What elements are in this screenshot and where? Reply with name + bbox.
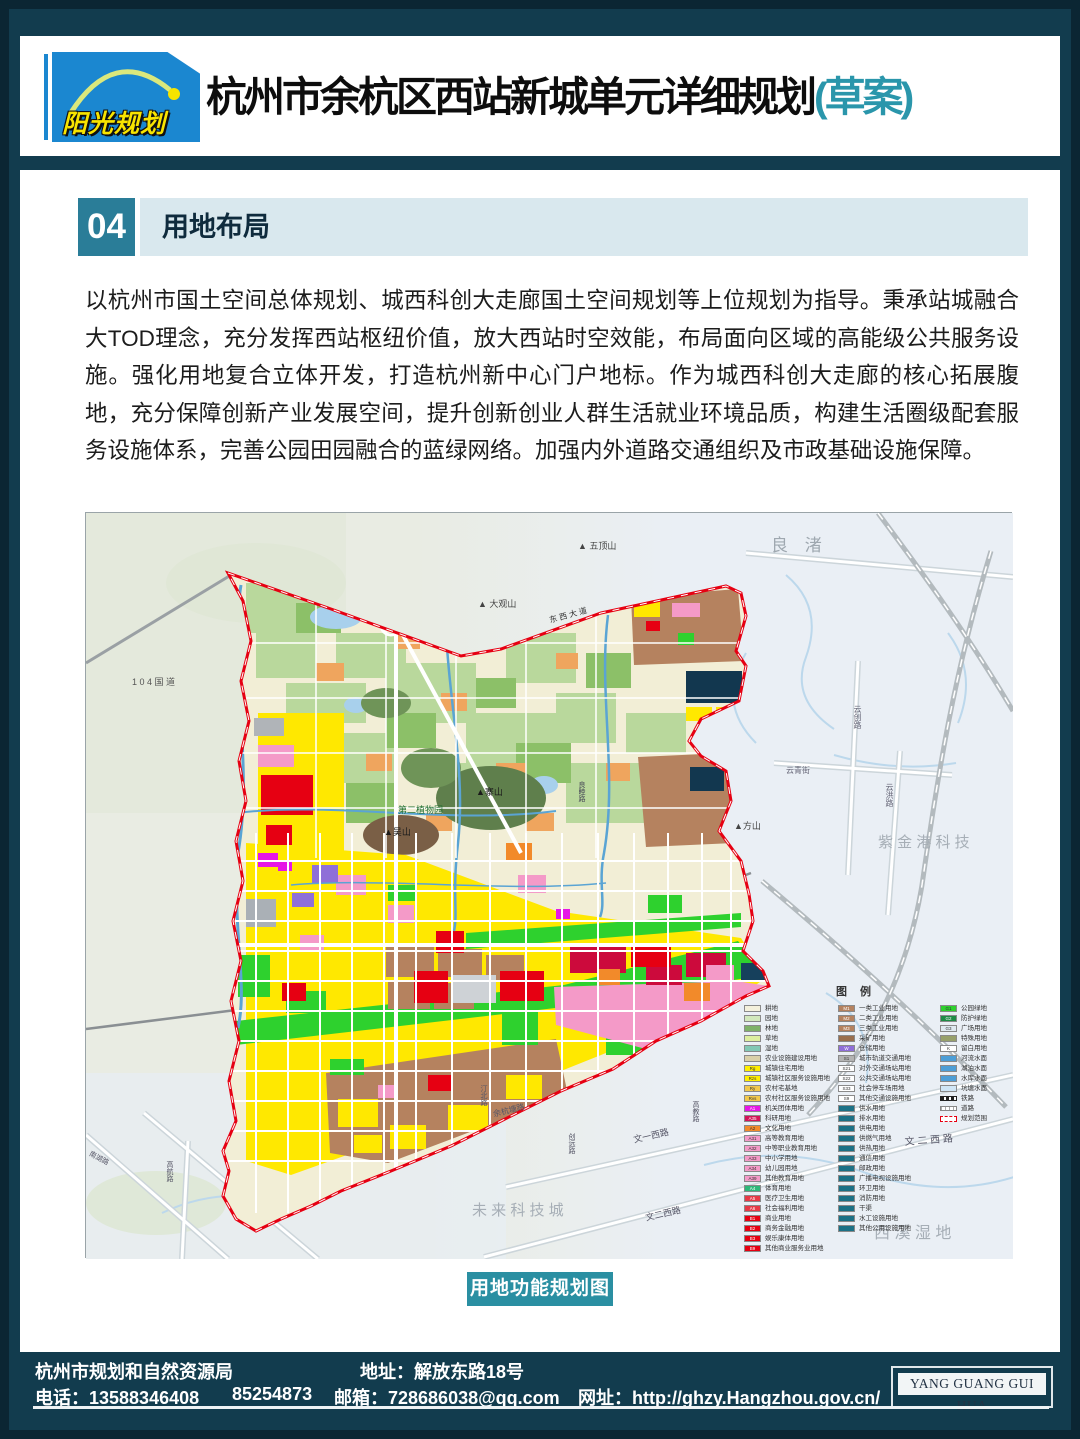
- legend-item: M1一类工业用地: [838, 1005, 911, 1012]
- legend-item: A39其他教育用地: [744, 1175, 830, 1182]
- legend-swatch: A33: [744, 1155, 761, 1162]
- legend-label: 商业用地: [765, 1215, 791, 1222]
- legend-swatch: Rg: [744, 1065, 761, 1072]
- legend-label: 其他教育用地: [765, 1175, 804, 1182]
- legend-swatch: G2: [940, 1015, 957, 1022]
- legend-item: 湿地: [744, 1045, 830, 1052]
- legend-item: Ry农村宅基地: [744, 1085, 830, 1092]
- bound-symbol-icon: [940, 1116, 957, 1122]
- footer-org: 杭州市规划和自然资源局: [35, 1358, 233, 1384]
- legend-swatch: Rvs: [744, 1095, 761, 1102]
- legend-swatch: [838, 1145, 855, 1152]
- map-label: 紫 金 港 科 技: [878, 831, 970, 852]
- legend-swatch: A4: [744, 1185, 761, 1192]
- legend-swatch: A1: [744, 1105, 761, 1112]
- map-label: 1 0 4 国 道: [132, 675, 175, 688]
- legend-label: 医疗卫生用地: [765, 1195, 804, 1202]
- legend-item: 坑塘水面: [940, 1085, 987, 1092]
- legend-label: 广场用地: [961, 1025, 987, 1032]
- legend-swatch: [838, 1155, 855, 1162]
- map-label: 良睦路: [576, 781, 586, 802]
- legend-label: 草地: [765, 1035, 778, 1042]
- legend-swatch: Ry: [744, 1085, 761, 1092]
- legend-item: B3娱乐康体用地: [744, 1235, 830, 1242]
- legend-swatch: [838, 1215, 855, 1222]
- legend-item: 采矿用地: [838, 1035, 911, 1042]
- legend-label: 供热用地: [859, 1145, 885, 1152]
- legend-swatch: S1: [838, 1055, 855, 1062]
- legend-label: 耕地: [765, 1005, 778, 1012]
- page-title-main: 杭州市余杭区西站新城单元详细规划: [206, 74, 814, 120]
- legend-item: 供电用地: [838, 1125, 911, 1132]
- legend-title: 图 例: [836, 983, 876, 999]
- legend-item: S21对外交通场站用地: [838, 1065, 911, 1072]
- legend-swatch: [838, 1105, 855, 1112]
- legend-label: 干渠: [859, 1205, 872, 1212]
- legend-label: 高等教育用地: [765, 1135, 804, 1142]
- legend-item: G1公园绿地: [940, 1005, 987, 1012]
- legend-item: Rvs农村社区服务设施用地: [744, 1095, 830, 1102]
- legend-label: 广播电视设施用地: [859, 1175, 911, 1182]
- legend-label: 其他商业服务业用地: [765, 1245, 824, 1252]
- legend-swatch: [838, 1165, 855, 1172]
- poster-page: 阳光规划 杭州市余杭区西站新城单元详细规划(草案) 04 用地布局 以杭州市国土…: [0, 0, 1080, 1439]
- legend-label: 湖泊水面: [961, 1065, 987, 1072]
- legend-swatch: A6: [744, 1205, 761, 1212]
- legend-item: 铁路: [940, 1095, 987, 1102]
- legend-item: 河流水面: [940, 1055, 987, 1062]
- legend-item: 邮政用地: [838, 1165, 911, 1172]
- legend-swatch: [838, 1185, 855, 1192]
- legend-item: 其他公用设施用地: [838, 1225, 911, 1232]
- map-label: 云洪路: [884, 783, 895, 807]
- legend-item: 消防用地: [838, 1195, 911, 1202]
- legend-swatch: B1: [744, 1215, 761, 1222]
- legend-item: 排水用地: [838, 1115, 911, 1122]
- legend-label: 通信用地: [859, 1155, 885, 1162]
- legend-label: 公共交通场站用地: [859, 1075, 911, 1082]
- legend-swatch: [744, 1035, 761, 1042]
- legend-item: G2防护绿地: [940, 1015, 987, 1022]
- body-paragraph: 以杭州市国土空间总体规划、城西科创大走廊国土空间规划等上位规划为指导。秉承站城融…: [85, 282, 1019, 470]
- legend-item: A1机关团体用地: [744, 1105, 830, 1112]
- legend-item: 耕地: [744, 1005, 830, 1012]
- map-label: ▲方山: [734, 819, 761, 832]
- legend-label: 环卫用地: [859, 1185, 885, 1192]
- legend-swatch: A32: [744, 1145, 761, 1152]
- page-title: 杭州市余杭区西站新城单元详细规划(草案): [206, 36, 1060, 156]
- legend-item: Rg城镇住宅用地: [744, 1065, 830, 1072]
- section-heading: 用地布局: [140, 198, 1028, 256]
- legend-column-1: 耕地园地林地草地湿地农业设施建设用地Rg城镇住宅用地Rzs城镇社区服务设施用地R…: [744, 1005, 830, 1252]
- legend-swatch: S21: [838, 1065, 855, 1072]
- legend-item: A6社会福利用地: [744, 1205, 830, 1212]
- legend-item: B9其他商业服务业用地: [744, 1245, 830, 1252]
- legend-label: 消防用地: [859, 1195, 885, 1202]
- map-caption-badge: 用地功能规划图: [467, 1272, 613, 1306]
- legend-label: 三类工业用地: [859, 1025, 898, 1032]
- legend-label: 水工设施用地: [859, 1215, 898, 1222]
- legend-label: 中等职业教育用地: [765, 1145, 817, 1152]
- legend-swatch: [838, 1205, 855, 1212]
- legend-item: 环卫用地: [838, 1185, 911, 1192]
- legend-column-3: G1公园绿地G2防护绿地G3广场用地特殊用地K留白用地河流水面湖泊水面水库水面坑…: [940, 1005, 987, 1122]
- legend-item: B2商务金融用地: [744, 1225, 830, 1232]
- legend-label: 一类工业用地: [859, 1005, 898, 1012]
- legend-label: 邮政用地: [859, 1165, 885, 1172]
- legend-label: 坑塘水面: [961, 1085, 987, 1092]
- legend-swatch: A35: [744, 1115, 761, 1122]
- legend-label: 机关团体用地: [765, 1105, 804, 1112]
- map-label: ▲吴山: [384, 825, 411, 838]
- legend-swatch: A5: [744, 1195, 761, 1202]
- legend-label: 供燃气用地: [859, 1135, 892, 1142]
- section-title: 用地布局: [162, 198, 270, 256]
- legend-label: 体育用地: [765, 1185, 791, 1192]
- legend-item: M3三类工业用地: [838, 1025, 911, 1032]
- legend-item: Rzs城镇社区服务设施用地: [744, 1075, 830, 1082]
- brand-box: YANG GUANG GUI HUA: [891, 1366, 1053, 1408]
- legend-label: 对外交通场站用地: [859, 1065, 911, 1072]
- legend-item: 供水用地: [838, 1105, 911, 1112]
- legend-item: 供燃气用地: [838, 1135, 911, 1142]
- legend-swatch: [744, 1045, 761, 1052]
- sunshine-planning-logo: 阳光规划: [52, 52, 200, 142]
- map-label: ▲ 五顶山: [578, 539, 616, 552]
- footer-address: 地址：解放东路18号: [360, 1358, 524, 1384]
- legend-swatch: [940, 1035, 957, 1042]
- legend-label: 规划范围: [961, 1115, 987, 1122]
- legend-item: 农业设施建设用地: [744, 1055, 830, 1062]
- legend-swatch: M1: [838, 1005, 855, 1012]
- legend-swatch: G1: [940, 1005, 957, 1012]
- legend-item: 水工设施用地: [838, 1215, 911, 1222]
- legend-swatch: M2: [838, 1015, 855, 1022]
- legend-label: 铁路: [961, 1095, 974, 1102]
- map-label: 高教路: [690, 1101, 700, 1122]
- legend-swatch: W: [838, 1045, 855, 1052]
- legend-label: 供电用地: [859, 1125, 885, 1132]
- legend-label: 社会停车场用地: [859, 1085, 905, 1092]
- legend-item: 通信用地: [838, 1155, 911, 1162]
- legend-item: A2文化用地: [744, 1125, 830, 1132]
- legend-item: 林地: [744, 1025, 830, 1032]
- legend-swatch: [940, 1075, 957, 1082]
- legend-label: 供水用地: [859, 1105, 885, 1112]
- legend-swatch: [940, 1085, 957, 1092]
- map-label: 第二植物园: [398, 803, 443, 816]
- legend-item: A4体育用地: [744, 1185, 830, 1192]
- legend-label: 留白用地: [961, 1045, 987, 1052]
- legend-item: 广播电视设施用地: [838, 1175, 911, 1182]
- map-label: 高航路: [164, 1161, 174, 1182]
- footer-divider-line: [33, 1406, 1049, 1409]
- legend-label: 城镇社区服务设施用地: [765, 1075, 830, 1082]
- map-label: ▲寨山: [476, 785, 503, 798]
- legend-item: A33中小学用地: [744, 1155, 830, 1162]
- legend-swatch: [838, 1225, 855, 1232]
- legend-label: 科研用地: [765, 1115, 791, 1122]
- legend-label: 其他交通设施用地: [859, 1095, 911, 1102]
- legend-swatch: B9: [744, 1245, 761, 1252]
- legend-item: M2二类工业用地: [838, 1015, 911, 1022]
- legend-swatch: K: [940, 1045, 957, 1052]
- legend-label: 仓储用地: [859, 1045, 885, 1052]
- map-label: 创远路: [566, 1133, 576, 1154]
- legend-label: 排水用地: [859, 1115, 885, 1122]
- legend-item: W仓储用地: [838, 1045, 911, 1052]
- legend-label: 河流水面: [961, 1055, 987, 1062]
- legend-item: 园地: [744, 1015, 830, 1022]
- page-title-suffix: (草案): [814, 74, 911, 120]
- legend-label: 公园绿地: [961, 1005, 987, 1012]
- legend-item: A31高等教育用地: [744, 1135, 830, 1142]
- legend-swatch: M3: [838, 1025, 855, 1032]
- logo-accent-bar: [44, 54, 48, 140]
- legend-label: 农业设施建设用地: [765, 1055, 817, 1062]
- legend-label: 城镇住宅用地: [765, 1065, 804, 1072]
- legend-swatch: [744, 1055, 761, 1062]
- legend-swatch: [744, 1015, 761, 1022]
- map-label: 未 来 科 技 城: [472, 1199, 564, 1220]
- legend-item: 水库水面: [940, 1075, 987, 1082]
- legend-swatch: S9: [838, 1095, 855, 1102]
- legend-swatch: S22: [838, 1075, 855, 1082]
- legend-swatch: S33: [838, 1085, 855, 1092]
- map-label: 良 渚: [771, 531, 828, 556]
- legend-label: 农村宅基地: [765, 1085, 798, 1092]
- rail-symbol-icon: [940, 1096, 957, 1101]
- legend-item: B1商业用地: [744, 1215, 830, 1222]
- legend-label: 其他公用设施用地: [859, 1225, 911, 1232]
- legend-label: 园地: [765, 1015, 778, 1022]
- legend-item: 干渠: [838, 1205, 911, 1212]
- footer-phone2: 85254873: [232, 1384, 312, 1405]
- brand-text: YANG GUANG GUI HUA: [898, 1373, 1046, 1395]
- legend-swatch: [838, 1115, 855, 1122]
- legend-swatch: Rzs: [744, 1075, 761, 1082]
- map-label: ▲ 大观山: [478, 597, 516, 610]
- legend-item: A32中等职业教育用地: [744, 1145, 830, 1152]
- section-number: 04: [78, 198, 135, 256]
- legend-label: 幼儿园用地: [765, 1165, 798, 1172]
- map-label: 汀北路: [478, 1085, 488, 1106]
- legend-item: 规划范围: [940, 1115, 987, 1122]
- logo-text: 阳光规划: [62, 104, 166, 140]
- legend-swatch: [838, 1135, 855, 1142]
- legend-item: S22公共交通场站用地: [838, 1075, 911, 1082]
- legend-label: 林地: [765, 1025, 778, 1032]
- legend-swatch: [838, 1125, 855, 1132]
- legend-item: A35科研用地: [744, 1115, 830, 1122]
- legend-item: 特殊用地: [940, 1035, 987, 1042]
- legend-label: 城市轨道交通用地: [859, 1055, 911, 1062]
- legend-label: 中小学用地: [765, 1155, 798, 1162]
- legend-item: G3广场用地: [940, 1025, 987, 1032]
- legend-swatch: [744, 1025, 761, 1032]
- legend-swatch: [744, 1005, 761, 1012]
- legend-item: K留白用地: [940, 1045, 987, 1052]
- legend-label: 水库水面: [961, 1075, 987, 1082]
- legend-item: S33社会停车场用地: [838, 1085, 911, 1092]
- legend-label: 采矿用地: [859, 1035, 885, 1042]
- map-label: 云青街: [786, 765, 810, 776]
- legend-item: 供热用地: [838, 1145, 911, 1152]
- legend-label: 文化用地: [765, 1125, 791, 1132]
- legend-item: A34幼儿园用地: [744, 1165, 830, 1172]
- header-divider: [20, 156, 1060, 170]
- legend-label: 防护绿地: [961, 1015, 987, 1022]
- legend-label: 娱乐康体用地: [765, 1235, 804, 1242]
- legend-item: 道路: [940, 1105, 987, 1112]
- legend-swatch: B3: [744, 1235, 761, 1242]
- legend-swatch: A31: [744, 1135, 761, 1142]
- header: 阳光规划 杭州市余杭区西站新城单元详细规划(草案): [20, 36, 1060, 156]
- legend-swatch: [838, 1195, 855, 1202]
- legend-swatch: A2: [744, 1125, 761, 1132]
- legend-swatch: [838, 1175, 855, 1182]
- legend-label: 道路: [961, 1105, 974, 1112]
- land-use-map: 良 渚▲ 五顶山▲ 大观山1 0 4 国 道东 西 大 道▲寨山第二植物园▲吴山…: [85, 512, 1012, 1258]
- legend-item: A5医疗卫生用地: [744, 1195, 830, 1202]
- legend-item: 草地: [744, 1035, 830, 1042]
- map-label: 云创路: [852, 705, 863, 729]
- road-symbol-icon: [940, 1106, 957, 1111]
- legend-column-2: M1一类工业用地M2二类工业用地M3三类工业用地采矿用地W仓储用地S1城市轨道交…: [838, 1005, 911, 1232]
- legend-item: S1城市轨道交通用地: [838, 1055, 911, 1062]
- legend-swatch: B2: [744, 1225, 761, 1232]
- legend-label: 湿地: [765, 1045, 778, 1052]
- legend-swatch: [940, 1055, 957, 1062]
- content-panel: 04 用地布局 以杭州市国土空间总体规划、城西科创大走廊国土空间规划等上位规划为…: [20, 170, 1060, 1352]
- legend-swatch: [940, 1065, 957, 1072]
- legend-label: 二类工业用地: [859, 1015, 898, 1022]
- legend-label: 农村社区服务设施用地: [765, 1095, 830, 1102]
- legend-label: 社会福利用地: [765, 1205, 804, 1212]
- legend-label: 商务金融用地: [765, 1225, 804, 1232]
- legend-swatch: [838, 1035, 855, 1042]
- legend-item: 湖泊水面: [940, 1065, 987, 1072]
- legend-label: 特殊用地: [961, 1035, 987, 1042]
- legend-swatch: G3: [940, 1025, 957, 1032]
- legend-swatch: A34: [744, 1165, 761, 1172]
- legend-item: S9其他交通设施用地: [838, 1095, 911, 1102]
- legend-swatch: A39: [744, 1175, 761, 1182]
